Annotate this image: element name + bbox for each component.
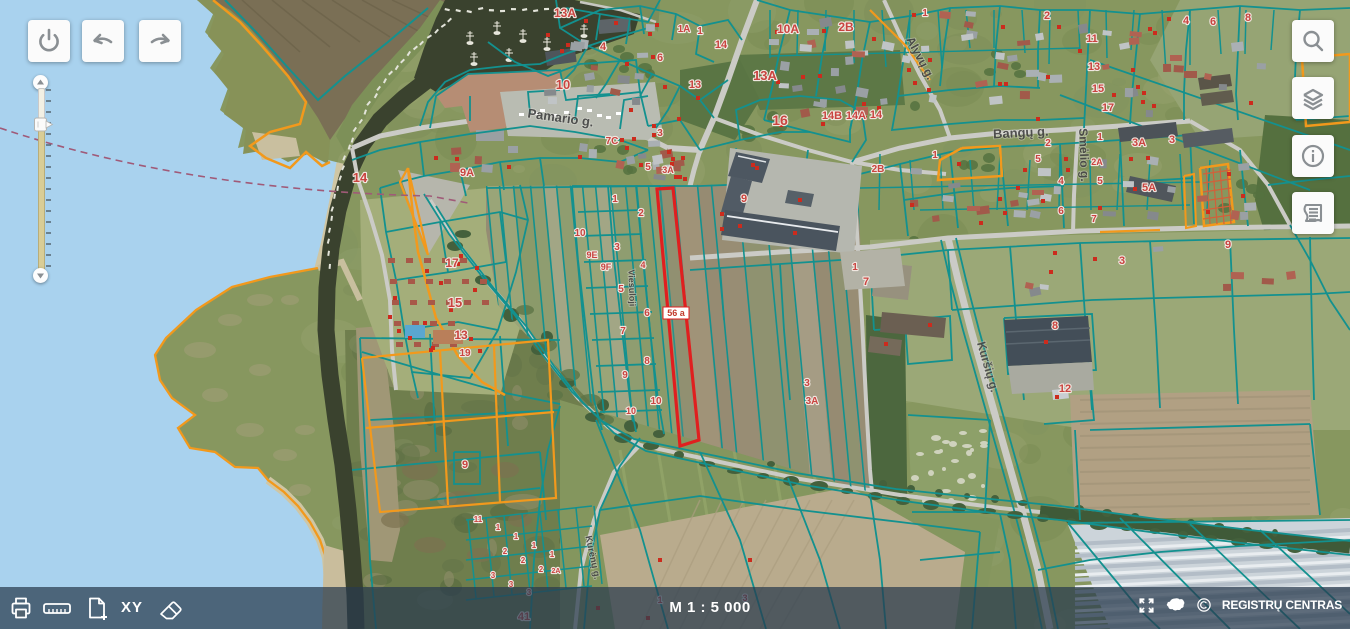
svg-text:9: 9 [462,459,468,471]
svg-text:1A: 1A [678,24,691,35]
svg-text:17: 17 [1102,102,1114,114]
svg-text:13A: 13A [753,68,777,83]
svg-text:12: 12 [1059,383,1071,395]
svg-text:14B: 14B [822,110,842,122]
svg-text:7C: 7C [606,136,619,147]
svg-text:3: 3 [614,242,620,253]
svg-text:7: 7 [863,276,869,288]
svg-text:1: 1 [922,8,928,19]
svg-text:4: 4 [600,41,607,53]
svg-text:Bangų g.: Bangų g. [993,124,1049,142]
svg-text:1: 1 [550,550,555,559]
svg-text:10: 10 [556,77,570,92]
svg-text:9A: 9A [460,167,474,179]
svg-text:2: 2 [521,556,526,565]
svg-text:8: 8 [1052,320,1058,332]
svg-text:6: 6 [1058,206,1064,217]
svg-text:17: 17 [445,256,459,270]
svg-text:5: 5 [618,284,624,295]
svg-text:1: 1 [514,532,519,541]
svg-text:14: 14 [870,109,883,121]
svg-text:4: 4 [640,260,645,270]
svg-text:4: 4 [1058,176,1064,187]
svg-text:2: 2 [539,565,544,574]
svg-text:10: 10 [650,396,662,407]
svg-text:6: 6 [644,308,650,319]
svg-text:14: 14 [715,39,728,51]
svg-text:15: 15 [1092,83,1104,95]
svg-text:13: 13 [689,79,701,91]
svg-text:Viesuloji: Viesuloji [626,269,637,306]
svg-text:2: 2 [1044,10,1050,22]
svg-text:3: 3 [1169,134,1175,146]
svg-text:14: 14 [353,170,368,185]
svg-text:9F: 9F [601,262,612,272]
svg-text:1: 1 [532,541,537,550]
svg-text:9: 9 [1225,239,1231,251]
svg-text:19: 19 [459,348,471,359]
svg-text:2: 2 [638,208,644,219]
svg-text:5A: 5A [1142,182,1156,194]
svg-text:3: 3 [804,378,810,389]
svg-text:8: 8 [1245,12,1251,24]
svg-text:7: 7 [1091,214,1097,225]
svg-text:3: 3 [491,571,496,580]
svg-text:1: 1 [496,523,501,532]
svg-text:8: 8 [644,356,650,367]
svg-text:14A: 14A [846,110,866,122]
svg-text:Smėlio g.: Smėlio g. [1076,128,1092,182]
svg-text:5: 5 [1035,154,1041,165]
svg-text:7: 7 [620,326,626,337]
svg-text:6: 6 [657,52,663,64]
svg-text:1: 1 [932,150,938,161]
svg-text:3: 3 [657,128,663,139]
svg-text:3: 3 [1119,255,1125,267]
svg-text:11: 11 [1086,33,1098,45]
svg-text:10A: 10A [777,22,799,36]
svg-text:2: 2 [503,547,508,556]
svg-text:1: 1 [697,26,703,37]
svg-text:2A: 2A [552,568,561,575]
svg-text:56 a: 56 a [667,308,686,318]
svg-text:10: 10 [574,228,586,239]
svg-text:13: 13 [1088,61,1100,73]
svg-text:13A: 13A [554,6,576,20]
svg-text:1: 1 [852,262,858,273]
svg-text:16: 16 [772,112,788,128]
svg-text:1: 1 [1097,132,1103,143]
svg-text:9: 9 [741,193,747,205]
svg-text:5: 5 [645,162,651,173]
svg-text:3A: 3A [806,396,819,407]
svg-text:9: 9 [622,370,628,381]
svg-text:9E: 9E [586,250,597,260]
svg-text:2B: 2B [838,20,854,34]
svg-text:13: 13 [454,328,468,342]
svg-text:2A: 2A [1091,157,1103,167]
svg-text:11: 11 [474,515,483,524]
svg-text:10: 10 [626,406,636,416]
svg-text:3A: 3A [662,165,674,175]
svg-text:4: 4 [1183,15,1190,27]
svg-text:1: 1 [612,194,618,205]
svg-text:2B: 2B [872,164,885,175]
svg-text:15: 15 [448,295,462,310]
svg-text:3A: 3A [1132,137,1146,149]
svg-text:2: 2 [1045,138,1051,149]
svg-text:5: 5 [1097,176,1103,187]
svg-text:6: 6 [1210,16,1216,28]
